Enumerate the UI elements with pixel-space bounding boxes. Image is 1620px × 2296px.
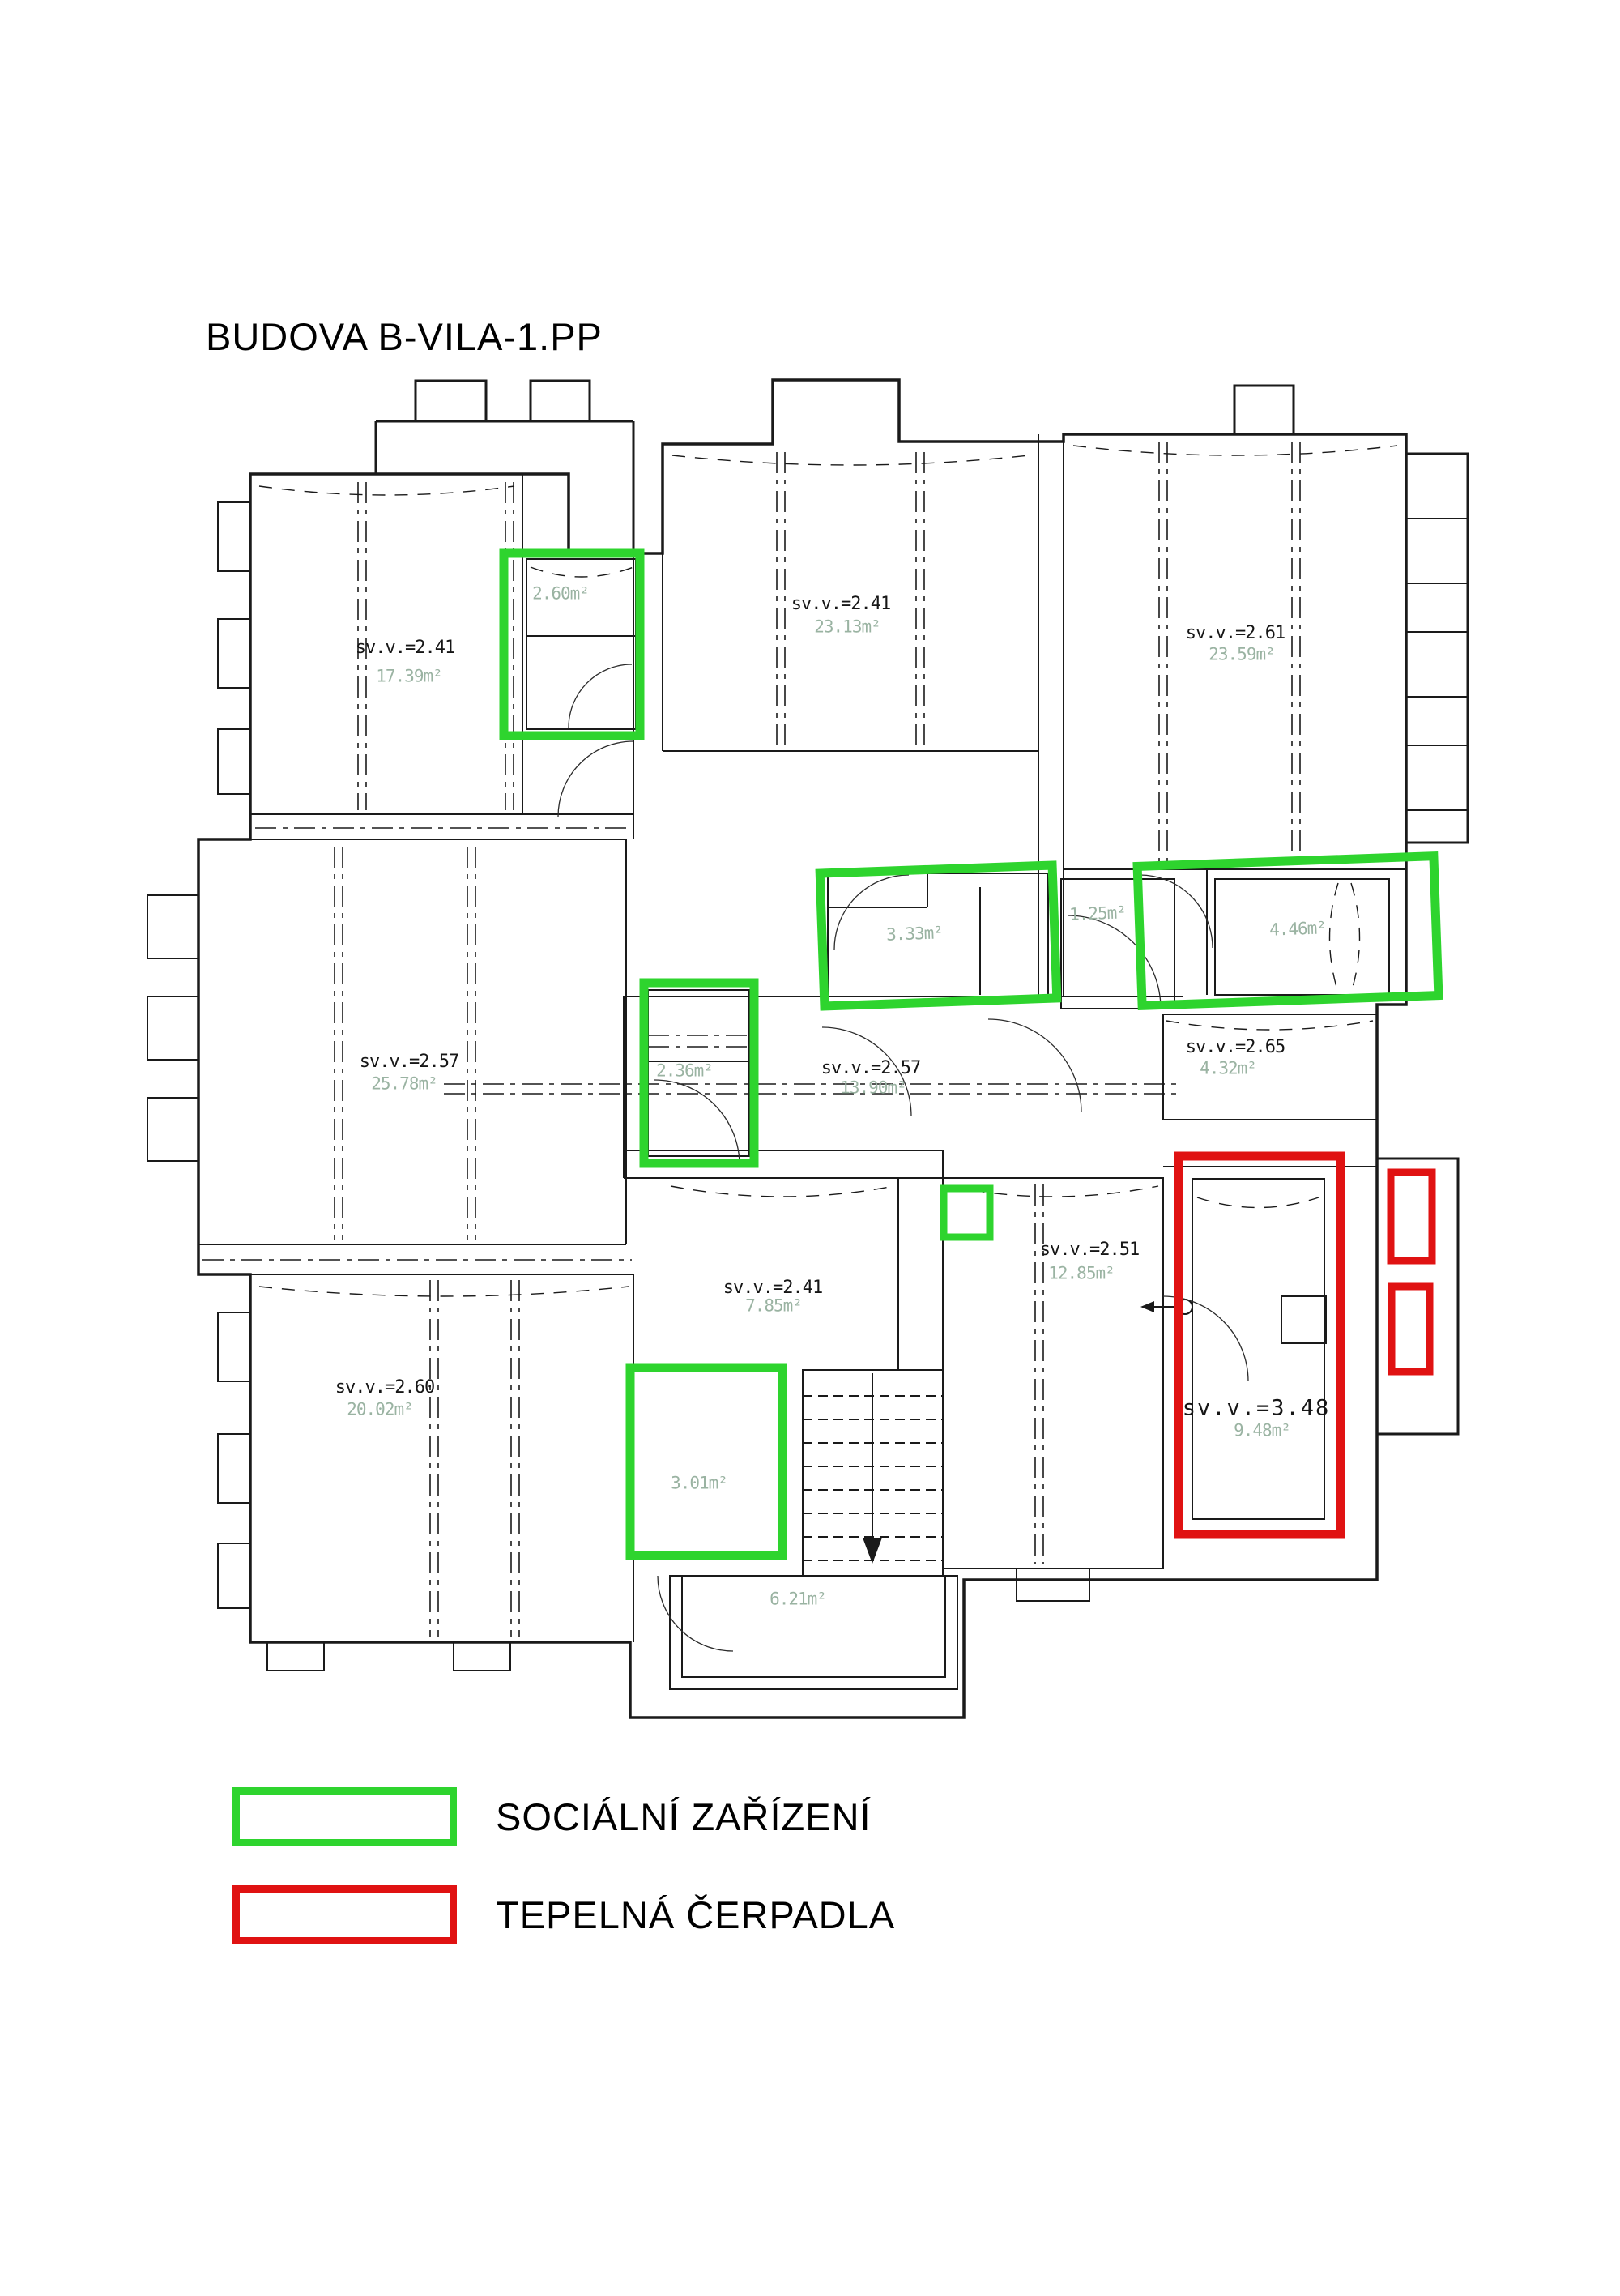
heat-pump-legend-label: TEPELNÁ ČERPADLA — [496, 1893, 895, 1937]
sanitary-area-label-2: 3.33m² — [886, 924, 944, 943]
room-south-height-label: sv.v.=2.41 — [723, 1279, 822, 1297]
room-northwest-height-label: sv.v.=2.41 — [356, 639, 454, 657]
corridor-area-label: 13.90m² — [840, 1080, 906, 1097]
floor-plan-page: BUDOVA B-VILA-1.PP — [0, 0, 1620, 2296]
room-south-area-label: 7.85m² — [745, 1298, 802, 1315]
room-northwest-area-label: 17.39m² — [376, 668, 442, 685]
sanitary-legend-label: SOCIÁLNÍ ZAŘÍZENÍ — [496, 1795, 872, 1839]
room-east-area-label: 4.32m² — [1200, 1061, 1256, 1078]
heat-pump-legend-swatch — [232, 1885, 457, 1944]
room-southeast-area-label: 12.85m² — [1048, 1265, 1115, 1282]
heat-pump-highlight-1 — [1179, 1156, 1341, 1534]
room-north-height-label: sv.v.=2.41 — [791, 595, 890, 613]
room-west-area-label: 25.78m² — [371, 1076, 437, 1093]
legend: SOCIÁLNÍ ZAŘÍZENÍ TEPELNÁ ČERPADLA — [232, 1787, 895, 1983]
legend-row-sanitary: SOCIÁLNÍ ZAŘÍZENÍ — [232, 1787, 895, 1846]
small-room-area-label: 1.25m² — [1069, 904, 1127, 923]
corridor-height-label: sv.v.=2.57 — [821, 1060, 920, 1078]
room-northeast-height-label: sv.v.=2.61 — [1186, 625, 1285, 642]
heat-pump-room-area-label: 9.48m² — [1234, 1423, 1290, 1440]
room-north-area-label: 23.13m² — [814, 619, 880, 636]
heat-pump-highlight-2 — [1391, 1172, 1432, 1261]
room-east-height-label: sv.v.=2.65 — [1186, 1039, 1285, 1056]
sanitary-highlight-5 — [944, 1189, 990, 1237]
sanitary-area-label-3: 4.46m² — [1269, 920, 1327, 938]
sanitary-legend-swatch — [232, 1787, 457, 1846]
sanitary-area-label-5: 3.01m² — [671, 1475, 727, 1492]
room-southwest-height-label: sv.v.=2.60 — [335, 1379, 434, 1397]
room-southeast-height-label: sv.v.=2.51 — [1040, 1241, 1139, 1259]
heat-pump-room-height-label: sv.v.=3.48 — [1183, 1398, 1331, 1419]
room-northeast-area-label: 23.59m² — [1209, 647, 1275, 664]
entry-hall-area-label: 6.21m² — [769, 1591, 826, 1608]
room-west-height-label: sv.v.=2.57 — [360, 1053, 458, 1071]
heat-pump-highlight-3 — [1392, 1287, 1430, 1372]
room-southwest-area-label: 20.02m² — [347, 1402, 413, 1419]
sanitary-area-label-4: 2.36m² — [656, 1063, 713, 1080]
sanitary-area-label-1: 2.60m² — [532, 586, 589, 603]
sanitary-highlight-6 — [630, 1368, 782, 1556]
legend-row-heat-pump: TEPELNÁ ČERPADLA — [232, 1885, 895, 1944]
